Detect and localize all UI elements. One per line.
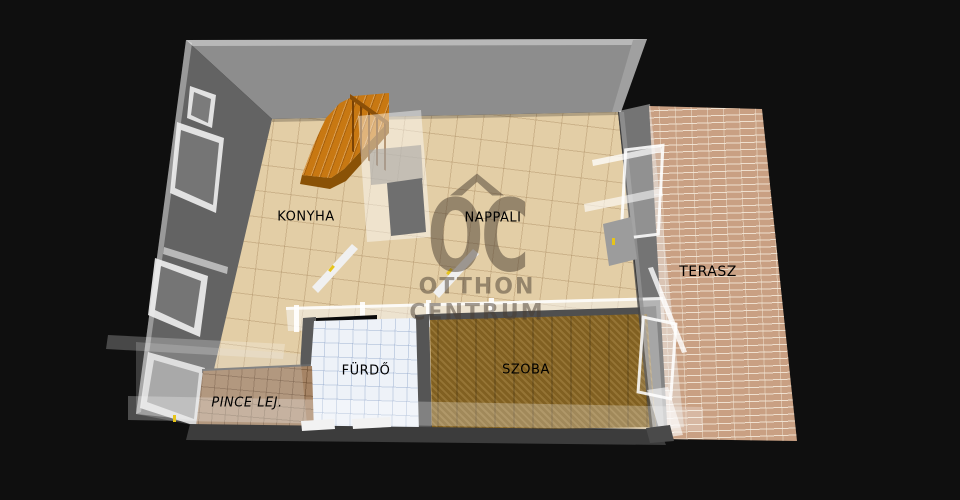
room-label-bathroom: FÜRDŐ (342, 364, 391, 379)
room-label-kitchen: KONYHA (277, 210, 334, 225)
otthon-centrum-watermark: OC OTTHON CENTRUM (402, 174, 552, 327)
room-label-living: NAPPALI (465, 211, 522, 226)
wall-post (294, 305, 299, 332)
watermark-line2: CENTRUM (402, 301, 552, 327)
room-terrace-window (636, 315, 677, 400)
room-label-room: SZOBA (502, 363, 550, 378)
door-handle (173, 415, 176, 422)
door-handle (328, 265, 335, 272)
floorplan-3d-render: OC OTTHON CENTRUM KONYHA NAPPALI TERASZ … (0, 0, 960, 500)
door-handle (612, 238, 615, 245)
room-label-terrace: TERASZ (679, 264, 737, 280)
living-terrace-window (619, 144, 664, 241)
room-label-cellar: PINCE LEJ. (211, 396, 282, 411)
wall-post (360, 302, 365, 329)
